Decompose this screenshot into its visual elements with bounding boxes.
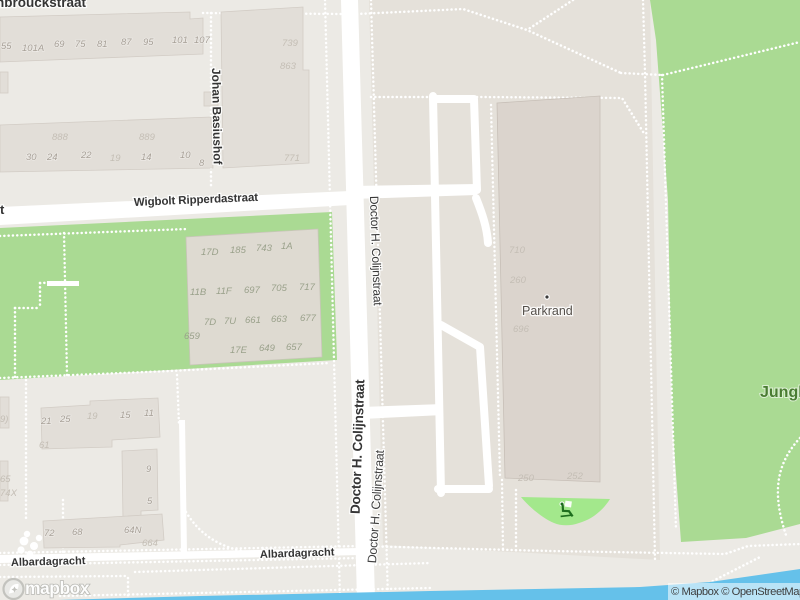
svg-text:17D: 17D [201,247,219,258]
svg-text:743: 743 [256,243,273,254]
svg-text:5: 5 [147,496,153,507]
svg-text:95: 95 [143,37,154,48]
svg-text:11F: 11F [216,286,233,297]
svg-text:Junglepad: Junglepad [760,384,800,401]
svg-text:7D: 7D [204,317,216,328]
svg-text:107: 107 [194,35,211,46]
svg-text:55: 55 [1,41,12,52]
svg-text:30: 30 [26,152,37,163]
svg-text:771: 771 [284,153,300,164]
svg-text:863: 863 [280,61,297,72]
svg-text:t: t [0,202,5,217]
svg-text:101A: 101A [22,43,44,54]
svg-text:64N: 64N [124,525,142,536]
svg-text:661: 661 [245,315,261,326]
svg-text:24: 24 [46,152,58,163]
svg-text:697: 697 [244,285,261,296]
svg-text:252: 252 [566,471,584,482]
svg-text:677: 677 [300,313,317,324]
svg-text:75: 75 [75,39,86,50]
svg-text:8: 8 [199,158,205,169]
svg-text:185: 185 [230,245,247,256]
svg-text:Johan Basiushof: Johan Basiushof [209,68,225,166]
svg-text:65: 65 [0,474,11,485]
svg-text:260: 260 [509,275,527,286]
svg-text:663: 663 [271,314,288,325]
svg-text:74X: 74X [0,488,18,499]
svg-text:250: 250 [517,473,535,484]
svg-text:hbrouckstraat: hbrouckstraat [0,0,87,10]
svg-text:Albardagracht: Albardagracht [11,555,86,569]
svg-text:739: 739 [282,38,299,49]
svg-text:9: 9 [146,464,152,475]
svg-text:19: 19 [110,153,121,164]
svg-text:9): 9) [0,414,8,425]
svg-text:72: 72 [44,528,55,539]
svg-text:10: 10 [180,150,191,161]
svg-text:657: 657 [286,342,303,353]
svg-text:mapbox: mapbox [25,578,90,598]
svg-text:© Mapbox © OpenStreetMap: © Mapbox © OpenStreetMap [671,586,800,598]
svg-text:11: 11 [144,408,154,419]
svg-text:17E: 17E [230,345,248,356]
svg-text:696: 696 [513,324,530,335]
svg-text:717: 717 [299,282,316,293]
svg-text:659: 659 [184,331,201,342]
svg-text:19: 19 [87,411,98,422]
svg-text:1A: 1A [281,241,293,252]
svg-text:649: 649 [259,343,276,354]
svg-text:15: 15 [120,410,131,421]
svg-text:Parkrand: Parkrand [522,304,573,318]
svg-text:710: 710 [509,245,526,256]
svg-text:61: 61 [39,440,50,451]
svg-text:664: 664 [142,538,158,549]
svg-text:69: 69 [54,39,65,50]
svg-text:81: 81 [97,39,108,50]
svg-text:705: 705 [271,283,288,294]
svg-text:7U: 7U [224,316,236,327]
svg-text:68: 68 [72,527,83,538]
svg-text:888: 888 [52,132,69,143]
svg-text:22: 22 [80,150,92,161]
svg-text:11B: 11B [190,287,207,298]
svg-text:14: 14 [141,152,152,163]
svg-text:21: 21 [40,416,52,427]
svg-text:87: 87 [121,37,132,48]
svg-text:889: 889 [139,132,156,143]
svg-text:25: 25 [59,414,71,425]
svg-text:101: 101 [172,35,188,46]
